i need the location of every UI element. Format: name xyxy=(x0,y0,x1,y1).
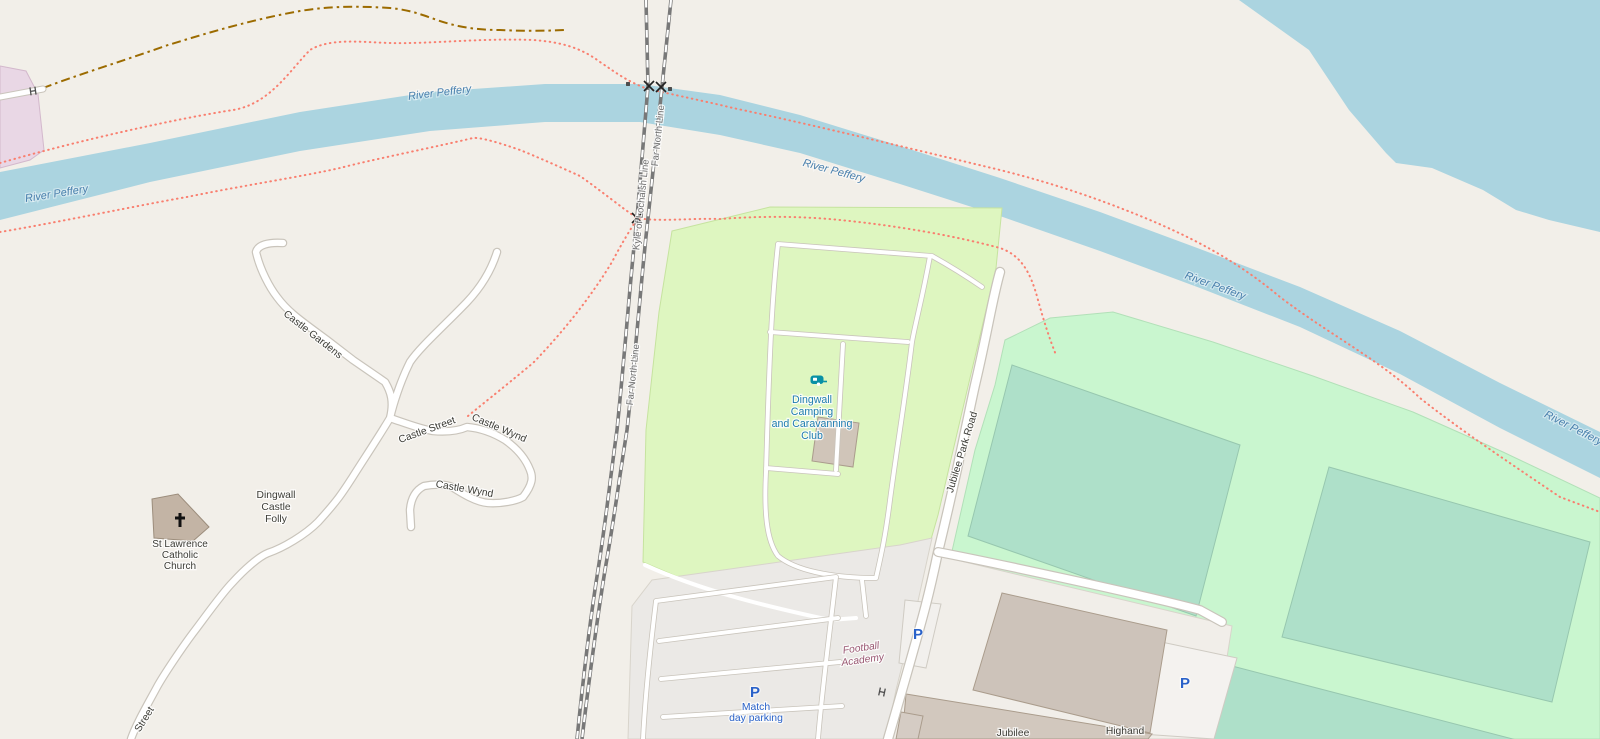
jubilee-label: Jubilee xyxy=(997,728,1030,739)
map-viewport: River Peffery River Peffery River Peffer… xyxy=(0,0,1600,739)
match-day-line2: day parking xyxy=(729,713,783,724)
parking-p-icon: P xyxy=(913,626,923,643)
camp-line3: and Caravanning xyxy=(772,418,853,430)
crossing-marker-icon xyxy=(626,82,630,86)
match-day-line1: Match xyxy=(742,702,771,713)
camp-line2: Camping xyxy=(791,406,834,418)
map-canvas[interactable]: River Peffery River Peffery River Peffer… xyxy=(0,0,1600,739)
camp-line4: Club xyxy=(801,430,823,442)
parking-p-icon: P xyxy=(750,684,760,701)
parking-p-icon: P xyxy=(1180,675,1190,692)
crossing-marker-icon xyxy=(668,87,672,91)
church-line1: St Lawrence xyxy=(152,539,208,550)
highand-line1: Highand xyxy=(1106,726,1145,737)
church-line3: Church xyxy=(164,561,196,572)
folly-line2: Castle xyxy=(261,502,290,513)
camp-line1: Dingwall xyxy=(792,394,832,406)
folly-line3: Folly xyxy=(265,514,288,525)
folly-line1: Dingwall xyxy=(257,490,296,501)
church-line2: Catholic xyxy=(162,550,198,561)
